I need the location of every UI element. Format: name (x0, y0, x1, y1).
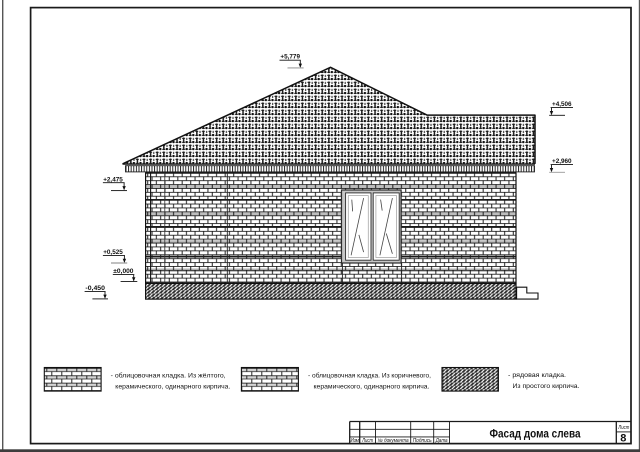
svg-text:керамического, одинарного кирп: керамического, одинарного кирпича. (115, 383, 230, 390)
svg-text:+4,506: +4,506 (552, 101, 572, 108)
svg-text:- рядовая кладка.: - рядовая кладка. (508, 372, 566, 379)
svg-text:Лист: Лист (361, 438, 373, 444)
svg-text:керамического, одинарного кирп: керамического, одинарного кирпича. (314, 383, 430, 390)
svg-text:Подпись: Подпись (413, 438, 432, 444)
svg-text:+0,525: +0,525 (103, 249, 123, 256)
svg-text:№ документа: № документа (378, 438, 409, 444)
svg-text:Дата: Дата (435, 438, 448, 444)
svg-text:- облицовочная кладка. Из жёлт: - облицовочная кладка. Из жёлтого, (111, 371, 226, 379)
svg-text:Изм: Изм (350, 438, 359, 444)
svg-text:- облицовочная кладка. Из кори: - облицовочная кладка. Из коричневого, (308, 371, 431, 379)
svg-text:+2,960: +2,960 (552, 158, 572, 165)
svg-text:Из простого кирпича.: Из простого кирпича. (513, 383, 580, 390)
svg-text:8: 8 (620, 433, 626, 445)
svg-text:Фасад дома слева: Фасад дома слева (490, 426, 581, 440)
svg-text:+5,779: +5,779 (280, 54, 300, 61)
svg-text:Лист: Лист (617, 425, 629, 431)
